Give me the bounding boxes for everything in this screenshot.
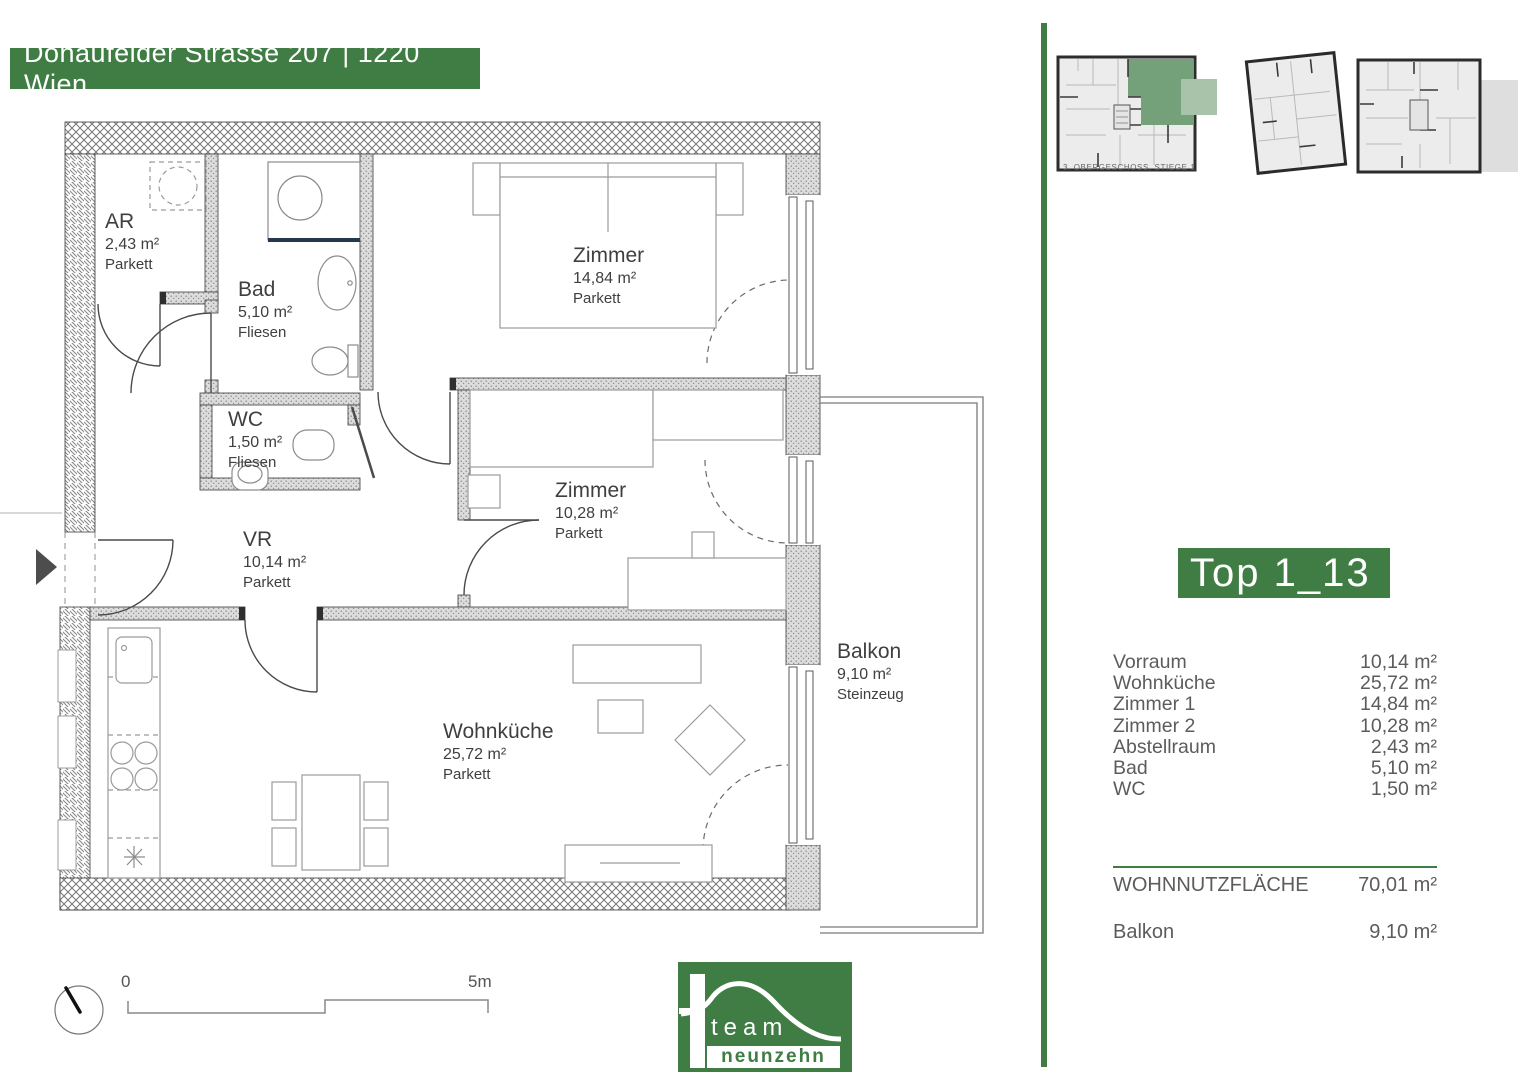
list-item: Wohnküche25,72 m² bbox=[1113, 673, 1437, 694]
list-item: Abstellraum2,43 m² bbox=[1113, 737, 1437, 758]
address-text: Donaufelder Strasse 207 | 1220 Wien bbox=[24, 38, 480, 100]
overview-plan-2 bbox=[1246, 53, 1345, 174]
dining-set bbox=[272, 775, 388, 870]
overview-plan-3 bbox=[1358, 60, 1518, 172]
floorplan-page: Donaufelder Strasse 207 | 1220 Wien AR 2… bbox=[0, 0, 1527, 1080]
unit-title-banner: Top 1_13 bbox=[1178, 548, 1390, 598]
scale-start-label: 0 bbox=[121, 972, 130, 992]
list-item: Bad5,10 m² bbox=[1113, 758, 1437, 779]
floorplan-canvas bbox=[0, 0, 1527, 1080]
logo-text-neunzehn-box: neunzehn bbox=[707, 1046, 840, 1068]
logo-bar bbox=[690, 974, 705, 1068]
list-item: Zimmer 210,28 m² bbox=[1113, 716, 1437, 737]
balcony-row: Balkon 9,10 m² bbox=[1113, 921, 1437, 944]
logo-text-team: team bbox=[711, 1014, 788, 1042]
overview-plan-1 bbox=[1058, 57, 1217, 170]
living-set bbox=[565, 645, 745, 882]
room-label-ar: AR 2,43 m² Parkett bbox=[105, 210, 159, 275]
list-item: Vorraum10,14 m² bbox=[1113, 652, 1437, 673]
room-area-list: Vorraum10,14 m² Wohnküche25,72 m² Zimmer… bbox=[1113, 652, 1437, 800]
list-item: Zimmer 114,84 m² bbox=[1113, 694, 1437, 715]
address-banner: Donaufelder Strasse 207 | 1220 Wien bbox=[10, 48, 480, 89]
scale-end-label: 5m bbox=[468, 972, 492, 992]
room-label-balkon: Balkon 9,10 m² Steinzeug bbox=[837, 640, 904, 705]
washing-machine bbox=[150, 162, 206, 210]
bath-toilet bbox=[312, 345, 358, 377]
overview-caption: 3. OBERGESCHOSS, STIEGE 1 bbox=[1063, 163, 1195, 172]
room-label-zimmer1: Zimmer 14,84 m² Parkett bbox=[573, 244, 644, 309]
logo-crossbar bbox=[679, 1008, 690, 1014]
total-row: WOHNNUTZFLÄCHE 70,01 m² bbox=[1113, 874, 1437, 897]
scale-bar bbox=[128, 1000, 488, 1013]
overview-plans bbox=[1058, 53, 1518, 174]
total-divider bbox=[1113, 866, 1437, 868]
appliance-symbol bbox=[124, 846, 145, 868]
room-label-wc: WC 1,50 m² Fliesen bbox=[228, 408, 282, 473]
compass-icon bbox=[55, 986, 103, 1034]
brand-logo: team neunzehn bbox=[678, 962, 852, 1072]
bathroom-fixtures bbox=[268, 162, 360, 377]
room-label-vr: VR 10,14 m² Parkett bbox=[243, 528, 306, 593]
room-label-bad: Bad 5,10 m² Fliesen bbox=[238, 278, 292, 343]
vertical-divider bbox=[1041, 23, 1047, 1067]
balcony-windows bbox=[786, 195, 820, 845]
list-item: WC1,50 m² bbox=[1113, 779, 1437, 800]
wc-basin bbox=[293, 430, 334, 460]
kitchen-living-furniture bbox=[108, 628, 745, 882]
room-label-zimmer2: Zimmer 10,28 m² Parkett bbox=[555, 479, 626, 544]
kitchen-sink bbox=[116, 637, 152, 683]
unit-title: Top 1_13 bbox=[1190, 551, 1371, 596]
room-label-wohnkueche: Wohnküche 25,72 m² Parkett bbox=[443, 720, 554, 785]
balcony-highlight bbox=[1181, 79, 1217, 115]
entrance-arrow-icon bbox=[36, 549, 57, 585]
furniture-zimmer2 bbox=[468, 390, 786, 610]
